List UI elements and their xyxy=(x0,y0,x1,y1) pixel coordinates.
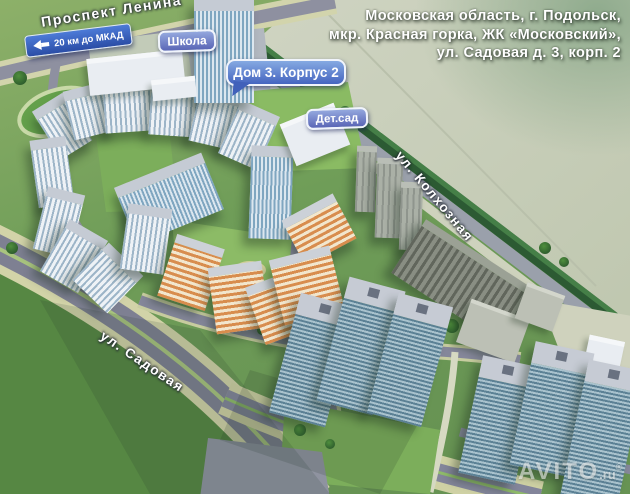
watermark-brand: AVITO xyxy=(518,458,599,485)
address-line-1: Московская область, г. Подольск, xyxy=(329,7,621,26)
watermark: AVITO.ru® xyxy=(518,458,624,486)
house-callout: Дом 3. Корпус 2 xyxy=(226,59,346,86)
concrete-tower xyxy=(355,146,377,213)
watermark-reg: ® xyxy=(616,462,625,472)
address-block: Московская область, г. Подольск, мкр. Кр… xyxy=(329,7,621,63)
address-line-3: ул. Садовая д. 3, корп. 2 xyxy=(329,44,621,63)
kindergarten-label: Дет.сад xyxy=(306,107,369,130)
left-arrow-icon xyxy=(33,39,50,51)
building-inner-tower xyxy=(120,203,173,274)
site-plan-map: Проспект Ленина ул. Колхозная ул. Садова… xyxy=(0,0,630,494)
house-callout-text: Дом 3. Корпус 2 xyxy=(233,65,338,80)
mkad-sign-text: 20 км до МКАД xyxy=(53,29,124,48)
house-callout-tail xyxy=(232,81,250,98)
school-label: Школа xyxy=(158,29,217,53)
address-line-2: мкр. Красная горка, ЖК «Московский», xyxy=(329,26,621,45)
watermark-suffix: .ru xyxy=(599,467,616,482)
